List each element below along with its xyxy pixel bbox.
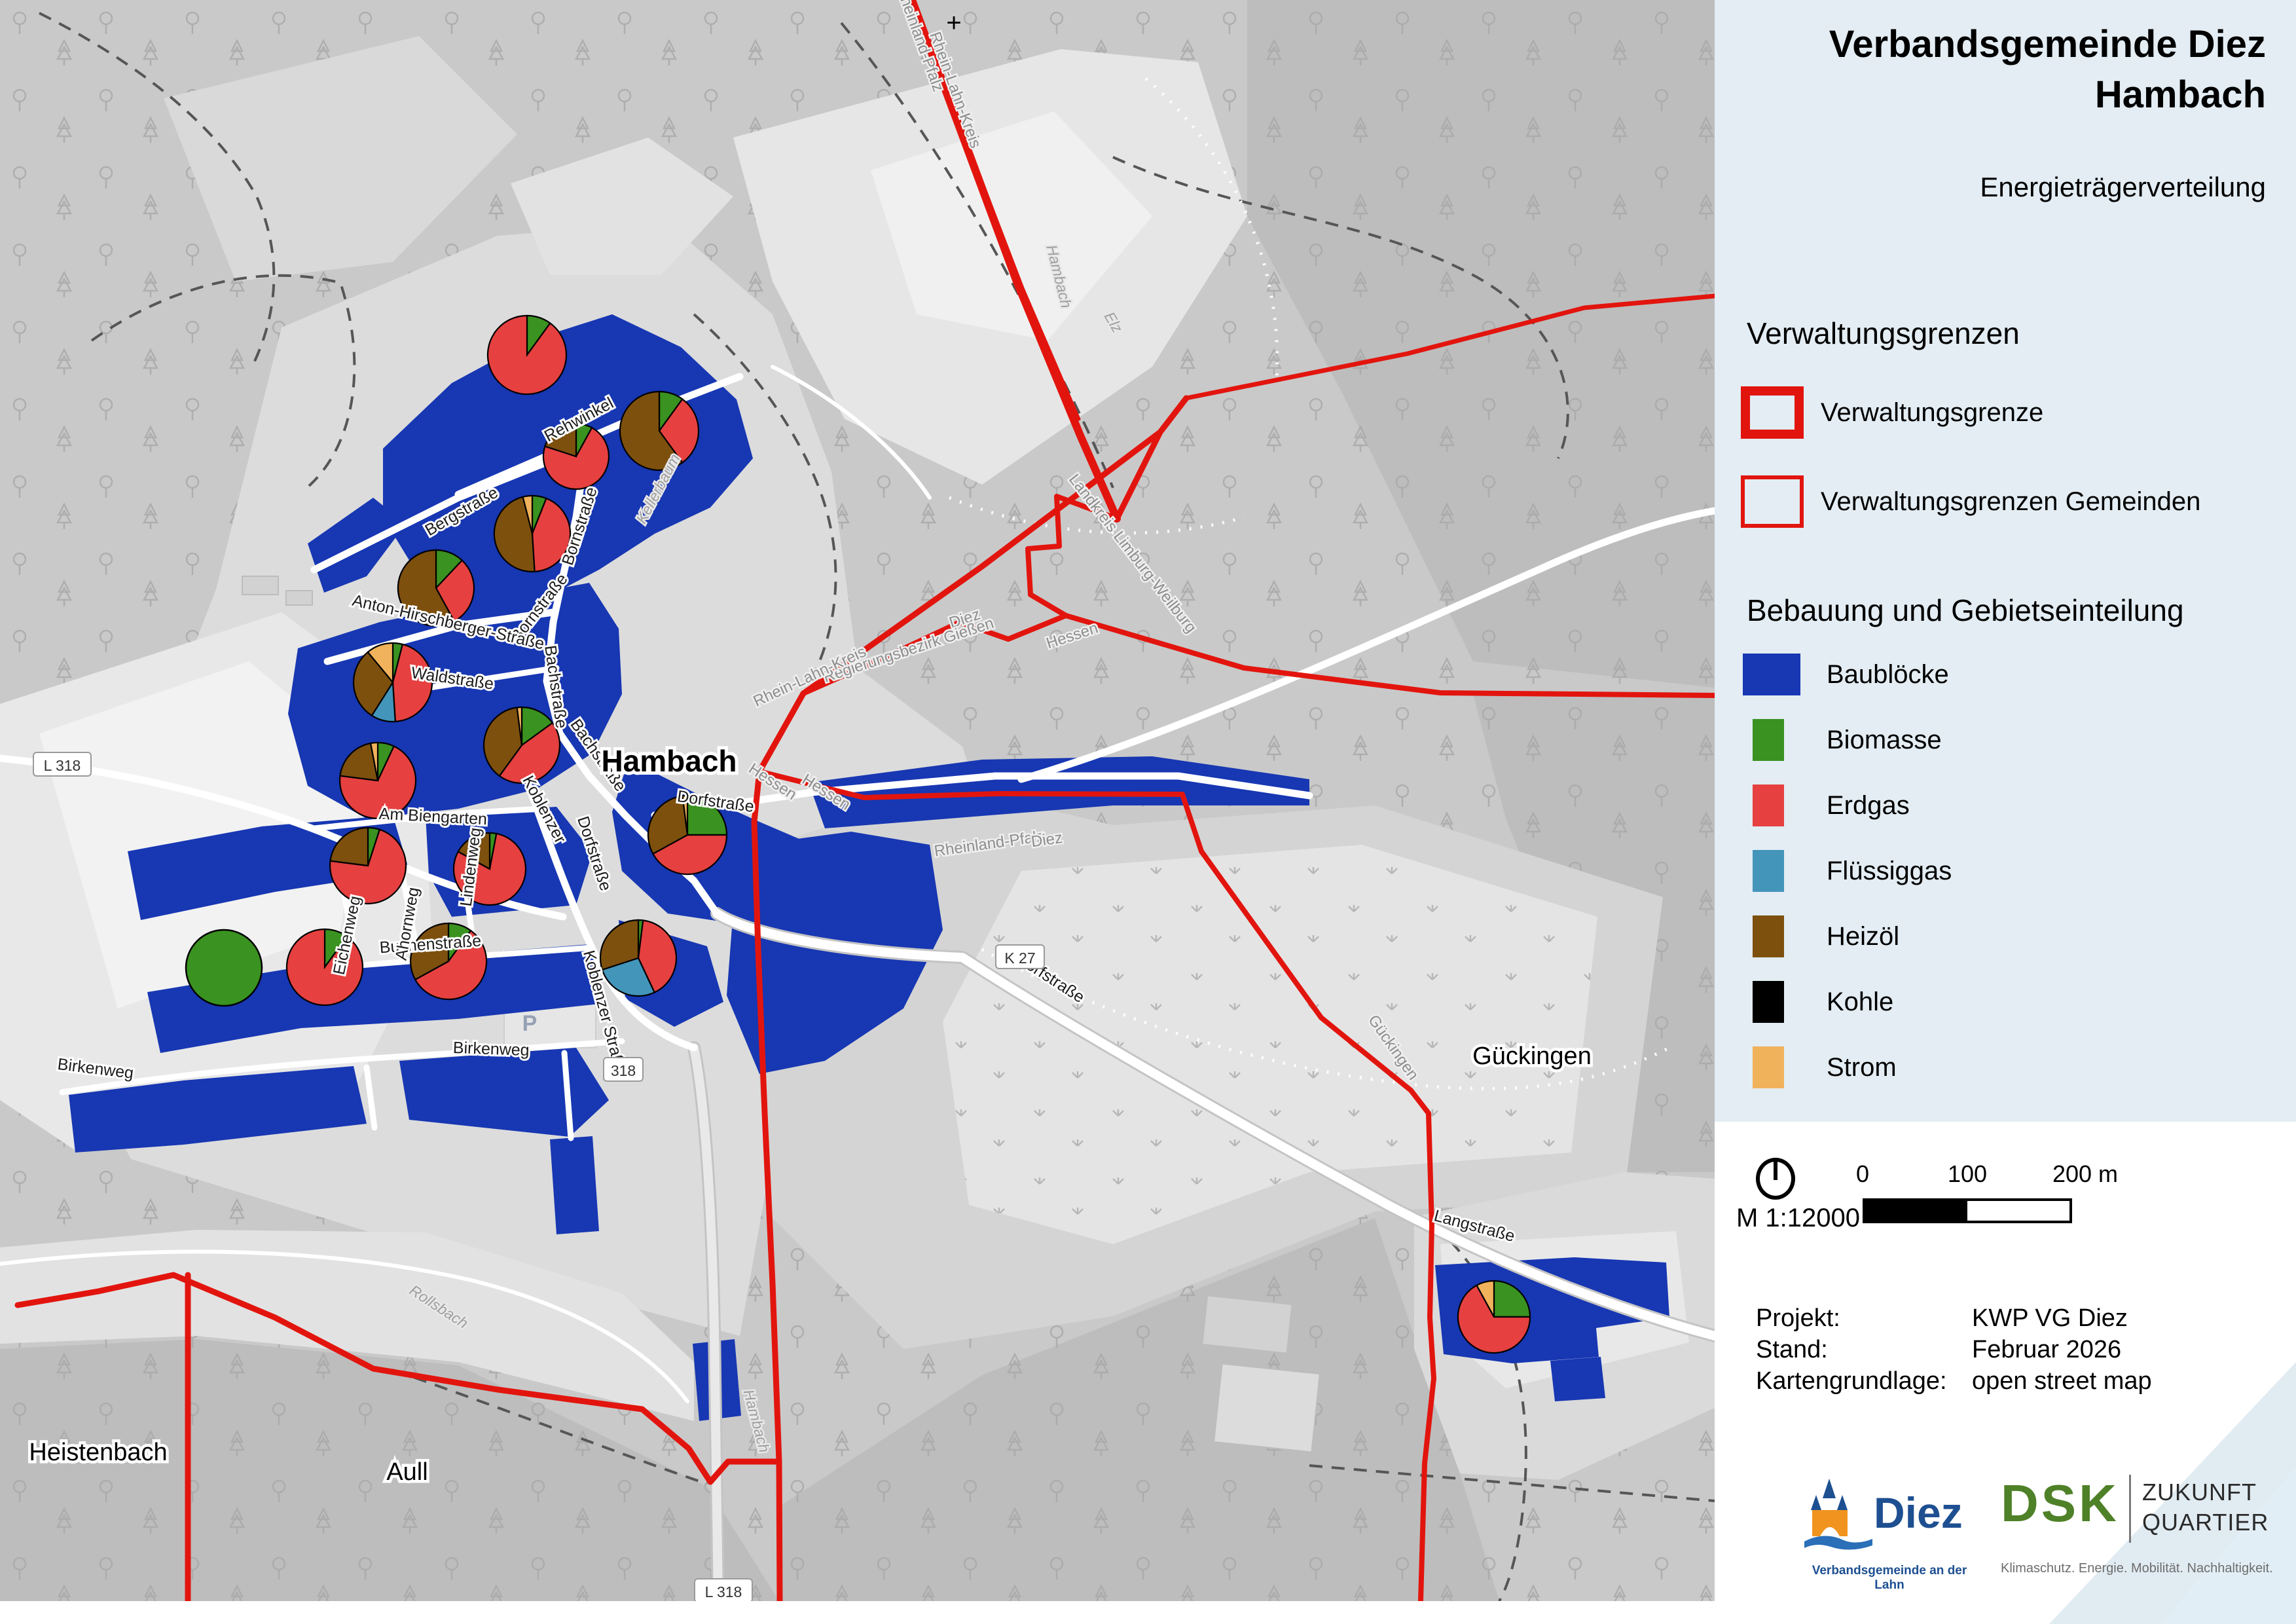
legend-bebauung-header: Bebauung und Gebietseinteilung [1747,593,2184,628]
diez-logo-name: Diez [1874,1488,1963,1538]
dsk-logo-line2: QUARTIER [2142,1509,2269,1536]
stand-label: Stand: [1756,1336,1828,1364]
legend-item-heizoel: Heizöl [1753,915,1899,957]
diez-logo-tagline: Verbandsgemeinde an der Lahn [1804,1564,1975,1593]
verwaltungsgrenzen-gemeinden-swatch [1741,475,1804,528]
legend-label: Heizöl [1827,922,1899,951]
legend-label: Verwaltungsgrenzen Gemeinden [1821,487,2200,517]
pie-chart-9 [330,828,406,904]
erdgas-swatch [1753,784,1784,826]
north-arrow-icon [1756,1158,1795,1200]
legend-label: Verwaltungsgrenze [1821,398,2043,428]
place-label: Gückingen [1472,1043,1592,1070]
place-label: Aull [386,1458,428,1486]
kohle-swatch [1753,981,1784,1023]
title-line-1: Verbandsgemeinde Diez [1829,20,2266,70]
pie-chart-3 [620,392,699,470]
street-label: Birkenweg [452,1039,530,1060]
map-subtitle: Energieträgerverteilung [1980,172,2266,203]
road-shield-label: K 27 [1004,950,1035,967]
map-title: Verbandsgemeinde Diez Hambach [1829,20,2266,120]
pie-chart-16 [1458,1281,1530,1353]
fluessiggas-swatch [1753,850,1784,892]
verwaltungsgrenze-swatch [1741,386,1804,439]
baubloecke-swatch [1743,654,1800,695]
biomasse-swatch [1753,719,1784,761]
place-label: Heistenbach [29,1439,167,1466]
legend-label: Flüssiggas [1827,857,1952,886]
legend-label: Biomasse [1827,726,1942,755]
road-shield-label: L 318 [44,757,81,774]
dsk-logo-line1: ZUKUNFT [2142,1479,2257,1506]
road-shield-label: 318 [611,1062,636,1079]
legend-item-biomasse: Biomasse [1753,719,1942,761]
project-value: KWP VG Diez [1972,1304,2128,1333]
stand-value: Februar 2026 [1972,1336,2121,1364]
scale-ratio: M 1:12000 [1736,1204,1860,1233]
chapel-cross-icon: + [946,9,961,37]
legend-item-baubloecke: Baublöcke [1743,654,1949,695]
legend-item-verwaltungsgrenze: Verwaltungsgrenze [1741,386,2043,439]
legend-item-kohle: Kohle [1753,981,1893,1023]
pie-chart-1 [488,316,566,394]
dsk-logo-name: DSK [2001,1473,2119,1534]
kartengrundlage-label: Kartengrundlage: [1756,1367,1947,1395]
dsk-logo-tagline: Klimaschutz. Energie. Mobilität. Nachhal… [2001,1561,2273,1576]
legend-item-fluessiggas: Flüssiggas [1753,850,1952,892]
dsk-logo-divider [2129,1475,2131,1543]
place-label: Hambach [601,744,737,778]
scale-tick-200: 200 m [2052,1160,2118,1188]
legend-label: Erdgas [1827,791,1910,821]
diez-logo-icon [1804,1472,1876,1554]
project-label: Projekt: [1756,1304,1840,1333]
road-shield-label: L 318 [705,1583,742,1600]
title-line-2: Hambach [1829,70,2266,120]
legend-verwaltung-header: Verwaltungsgrenzen [1747,316,2020,351]
parking-icon: P [522,1011,538,1036]
pie-chart-7 [484,707,560,783]
map-sheet: RehwinkelBergstraßeBornstraßeBornstraßeA… [0,0,2296,1624]
legend-label: Baublöcke [1827,660,1949,690]
heizoel-swatch [1753,915,1784,957]
map-canvas: RehwinkelBergstraßeBornstraßeBornstraßeA… [0,0,1715,1624]
strom-swatch [1753,1046,1784,1088]
scale-tick-100: 100 [1948,1160,1987,1188]
info-panel: Verbandsgemeinde Diez Hambach Energieträ… [1715,0,2296,1122]
scale-tick-0: 0 [1856,1160,1869,1188]
legend-item-erdgas: Erdgas [1753,784,1910,826]
legend-item-verwaltungsgrenzen-gemeinden: Verwaltungsgrenzen Gemeinden [1741,475,2200,528]
legend-label: Strom [1827,1053,1897,1082]
scale-bar [1863,1198,2072,1223]
pie-chart-15 [600,920,676,996]
legend-label: Kohle [1827,987,1893,1017]
legend-item-strom: Strom [1753,1046,1897,1088]
kartengrundlage-value: open street map [1972,1367,2152,1395]
pie-chart-12 [186,930,262,1006]
